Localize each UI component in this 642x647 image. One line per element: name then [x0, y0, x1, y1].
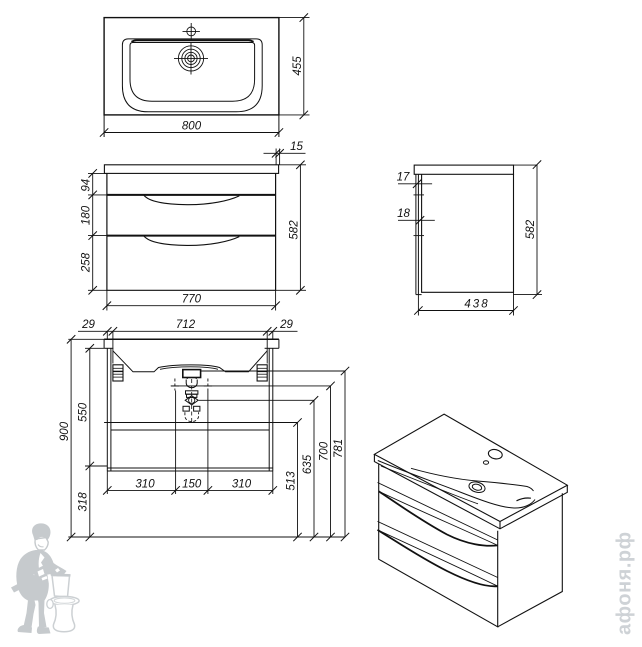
svg-text:900: 900: [59, 421, 71, 441]
svg-text:582: 582: [288, 220, 300, 240]
svg-text:29: 29: [81, 319, 95, 331]
svg-text:438: 438: [464, 298, 489, 310]
svg-text:афоня.рф: афоня.рф: [614, 531, 636, 635]
svg-text:781: 781: [333, 439, 345, 458]
svg-text:150: 150: [182, 478, 202, 490]
svg-text:15: 15: [290, 141, 303, 153]
svg-text:712: 712: [176, 319, 196, 331]
svg-text:310: 310: [135, 478, 155, 490]
svg-text:513: 513: [285, 471, 297, 491]
svg-text:94: 94: [81, 179, 93, 192]
svg-text:455: 455: [292, 56, 304, 76]
svg-text:258: 258: [81, 252, 93, 273]
svg-text:800: 800: [182, 121, 202, 133]
svg-text:635: 635: [302, 454, 314, 474]
svg-text:770: 770: [182, 294, 202, 306]
svg-text:29: 29: [279, 319, 293, 331]
svg-text:582: 582: [525, 219, 537, 239]
svg-text:318: 318: [78, 492, 90, 512]
svg-text:18: 18: [397, 208, 410, 220]
svg-text:550: 550: [78, 402, 90, 422]
svg-text:17: 17: [397, 172, 410, 184]
svg-text:310: 310: [232, 478, 252, 490]
svg-text:700: 700: [318, 441, 330, 461]
svg-text:180: 180: [81, 205, 93, 225]
